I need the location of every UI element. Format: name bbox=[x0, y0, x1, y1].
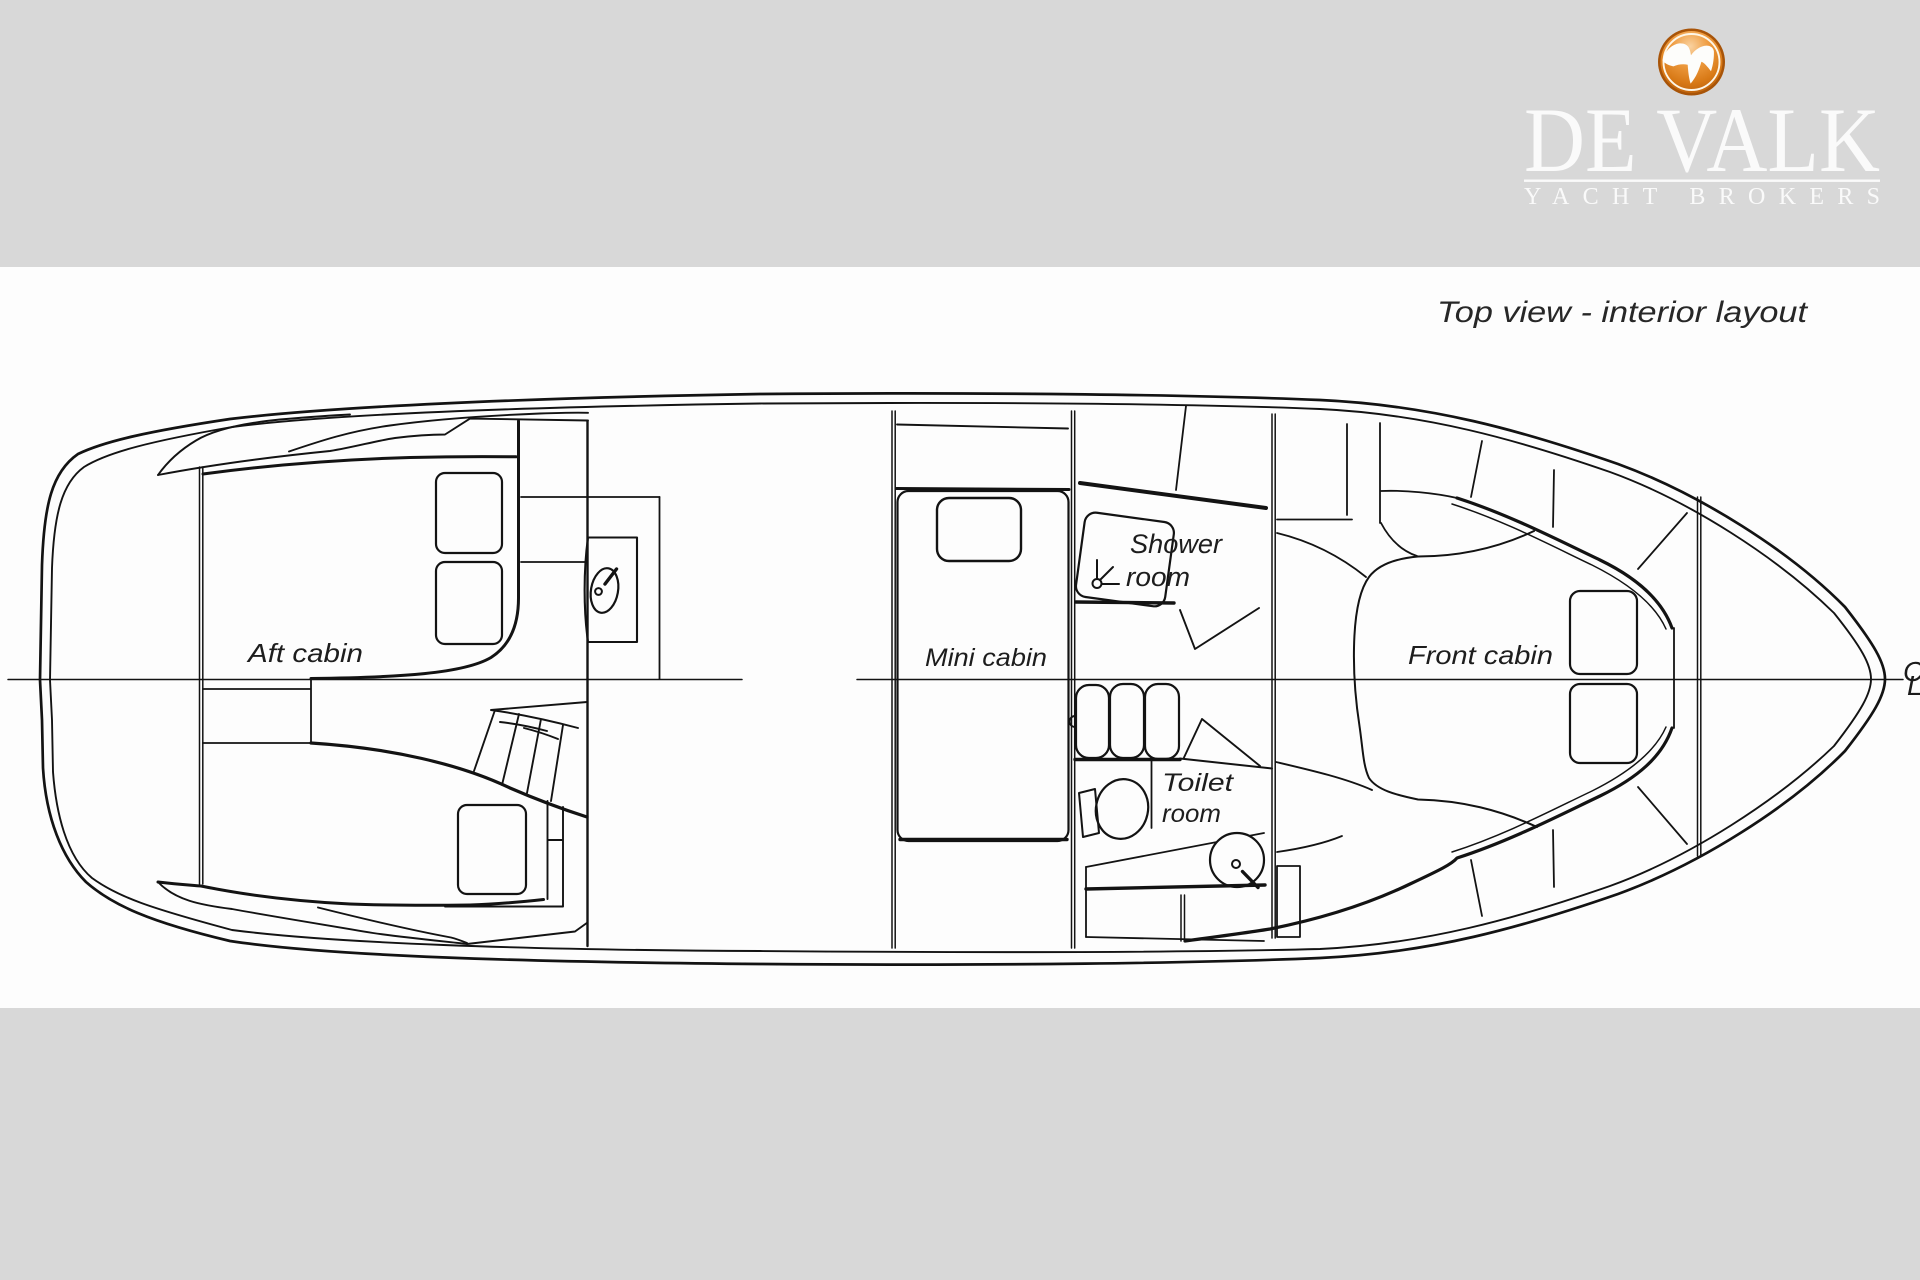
svg-text:Front cabin: Front cabin bbox=[1408, 640, 1553, 670]
svg-text:L: L bbox=[1907, 670, 1920, 701]
svg-text:Aft cabin: Aft cabin bbox=[246, 638, 363, 668]
svg-text:Toilet: Toilet bbox=[1162, 769, 1234, 797]
svg-text:room: room bbox=[1126, 562, 1190, 592]
svg-text:Mini cabin: Mini cabin bbox=[925, 644, 1047, 672]
svg-text:DE VALK: DE VALK bbox=[1524, 89, 1880, 191]
svg-text:room: room bbox=[1162, 800, 1221, 828]
svg-text:Top view - interior layout: Top view - interior layout bbox=[1437, 296, 1809, 329]
svg-text:Shower: Shower bbox=[1130, 529, 1223, 559]
